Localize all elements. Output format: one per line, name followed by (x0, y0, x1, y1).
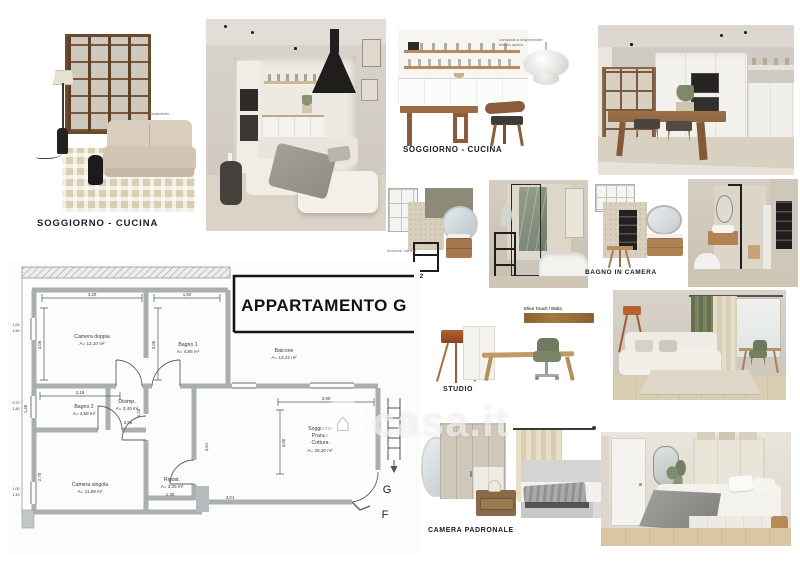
wall-hung-vanity (708, 231, 738, 245)
ceiling (598, 25, 794, 47)
svg-text:3,01: 3,01 (226, 495, 235, 500)
ceiling-spot (224, 25, 227, 28)
svg-text:A= 3,40 m²: A= 3,40 m² (116, 406, 139, 411)
corner-pilaster (22, 510, 34, 528)
svg-text:3,06: 3,06 (151, 340, 156, 349)
ceiling-spot (251, 31, 254, 34)
svg-text:A= 13,22 m²: A= 13,22 m² (271, 355, 297, 360)
svg-text:2,70: 2,70 (37, 472, 42, 481)
svg-text:Camera singola: Camera singola (72, 482, 108, 488)
svg-text:1,40: 1,40 (13, 493, 20, 497)
svg-text:1,50: 1,50 (13, 329, 20, 333)
render-bagno2 (489, 180, 588, 288)
svg-text:A= 4,58 m²: A= 4,58 m² (73, 411, 96, 416)
built-in-oven (240, 89, 258, 111)
balcony-hatch-strip (22, 267, 230, 278)
ceiling-spot (294, 47, 297, 50)
built-in-oven (240, 115, 258, 141)
wardrobe-handle (470, 471, 472, 477)
tile-soggiorno-moodboard: Divanoletto SOGGIORNO - CUCINA (28, 22, 203, 237)
floor-plan: APPARTAMENTO G 4,20 1,92 3,06 3,06 3,18 … (8, 262, 420, 554)
office-chair-seat (533, 351, 561, 362)
wall-frame (362, 39, 381, 67)
kitchen-shelf (264, 81, 322, 84)
office-chair-caster (555, 376, 559, 380)
render-soggiorno-cucina (206, 19, 386, 231)
material-note: Elion Touch / Malta (524, 306, 562, 311)
nightstand-lamp (488, 480, 501, 492)
radio-appliance (408, 42, 419, 50)
svg-text:1,80: 1,80 (13, 407, 20, 411)
tile-camera-padronale-moodboard: CAMERA PADRONALE (418, 402, 610, 534)
pendant-lamp-base (533, 72, 559, 85)
side-table (88, 155, 103, 185)
black-cart (494, 232, 516, 276)
wall-frame (361, 79, 378, 101)
candle (228, 153, 232, 161)
leaf-mirror (501, 204, 512, 226)
bed-pillow (753, 477, 776, 493)
chair (666, 121, 692, 131)
dining-table-top (400, 106, 478, 113)
ceiling-spot (630, 43, 633, 46)
built-in-microwave (691, 73, 719, 93)
window (565, 188, 584, 238)
marker-g: G (383, 484, 392, 496)
chair-leg (517, 124, 523, 146)
pendant-note-line2: bianco opaco (499, 42, 543, 47)
svg-text:3,60: 3,60 (281, 438, 286, 447)
label-studio: STUDIO (443, 386, 473, 393)
small-stool (748, 245, 760, 259)
tile-studio-moodboard: Elion Touch / Malta STUDIO (425, 300, 600, 396)
label-soggiorno-cucina-right: SOGGIORNO - CUCINA (403, 145, 502, 154)
tile-bagno-in-camera-moodboard: BAGNO IN CAMERA (583, 176, 798, 290)
sofa-note: Divanoletto (149, 111, 169, 116)
wood-shelf (404, 50, 520, 53)
svg-text:1,00: 1,00 (13, 323, 20, 327)
label-camera-padronale: CAMERA PADRONALE (428, 527, 514, 534)
svg-text:4,20: 4,20 (88, 292, 97, 297)
bed-storage-drawer (521, 502, 593, 518)
sofa-back-seam (149, 124, 150, 148)
desk-leg (565, 357, 574, 381)
sofa-cushion (659, 340, 677, 352)
vanity-cabinet (446, 238, 472, 258)
office-chair-column (545, 362, 548, 374)
svg-text:A= 13,10 m²: A= 13,10 m² (79, 341, 105, 346)
counter-plant (302, 95, 312, 113)
table-leg (407, 113, 412, 146)
chair (634, 119, 660, 129)
nightstand (476, 490, 516, 516)
chair-leg (490, 124, 496, 146)
round-mirror (646, 205, 682, 235)
svg-text:Camera doppia: Camera doppia (74, 334, 110, 340)
wall-pillar (196, 486, 209, 512)
moodboard-collage: Divanoletto SOGGIORNO - CUCINA (0, 0, 800, 565)
chair-legs (668, 131, 690, 157)
base-cabinets (398, 78, 528, 104)
tripod-lamp-leg (436, 343, 448, 382)
panel-seam (479, 327, 480, 379)
plan-title: APPARTAMENTO G (241, 296, 407, 315)
towel-radiator (776, 201, 792, 249)
svg-text:1,92: 1,92 (183, 292, 192, 297)
render-camera-padronale (601, 432, 791, 546)
table-leg-frame (453, 113, 468, 143)
sofa (103, 120, 196, 180)
render-studio-room (613, 290, 786, 400)
pendant-note: Lampada a sospensione bianco opaco (499, 37, 543, 47)
svg-text:Bagno 1: Bagno 1 (178, 342, 197, 348)
storage-box (697, 432, 715, 440)
svg-text:Pranzo: Pranzo (312, 433, 329, 439)
svg-text:1,35: 1,35 (166, 492, 175, 497)
floor (688, 269, 798, 287)
svg-text:Bagno 2: Bagno 2 (74, 404, 93, 410)
svg-text:3,18: 3,18 (76, 390, 85, 395)
bookcase (65, 34, 151, 134)
svg-text:Cottura: Cottura (311, 440, 328, 446)
black-stool (220, 161, 242, 205)
svg-text:A= 3,05 m²: A= 3,05 m² (161, 484, 184, 489)
shelf-items (268, 74, 316, 81)
tripod-lamp-shade (623, 306, 641, 315)
floor (601, 528, 791, 546)
sofa-cushion (635, 340, 653, 352)
svg-text:1,45: 1,45 (23, 404, 28, 413)
render-bagno-in-camera (688, 179, 798, 287)
stool-leg (619, 250, 621, 267)
svg-text:3,61: 3,61 (204, 442, 209, 451)
floor (489, 276, 588, 288)
shelf-items (752, 58, 790, 65)
svg-text:1,00: 1,00 (13, 487, 20, 491)
nightstand-drawer (480, 498, 514, 510)
lower-cabinets (748, 83, 794, 137)
green-chair-legs (751, 358, 765, 372)
wall-left-edge (601, 436, 609, 528)
office-chair-caster (535, 376, 539, 380)
floor-lamp-shade (53, 70, 74, 85)
curtain-finial (592, 426, 596, 430)
svg-text:0,70: 0,70 (13, 401, 20, 405)
oval-mirror (716, 195, 733, 223)
lamp-cable (36, 150, 62, 159)
towel-ladder-black (619, 210, 637, 250)
cart-note: Arredook / carrello (387, 249, 416, 254)
door (611, 438, 646, 526)
svg-text:3,90: 3,90 (322, 396, 331, 401)
floor-lamp-stem (62, 83, 64, 131)
ceiling-spot (744, 31, 747, 34)
svg-text:A= 26,20 m²: A= 26,20 m² (307, 448, 333, 453)
ceiling-spot (720, 34, 723, 37)
svg-text:3,06: 3,06 (37, 340, 42, 349)
svg-text:2,96: 2,96 (124, 420, 133, 425)
tile-soggiorno-cucina-moodboard: Lampada a sospensione bianco opaco SOGGI… (395, 24, 585, 156)
basin (712, 225, 734, 233)
svg-text:Soggiorno: Soggiorno (308, 426, 332, 432)
sofa-skirt (105, 168, 194, 177)
glass-partition (740, 184, 742, 276)
door-handle (639, 483, 642, 486)
svg-text:A= 4,85 m²: A= 4,85 m² (177, 349, 200, 354)
shelf-items (408, 59, 516, 66)
green-chair-seat (749, 350, 767, 358)
wood-sample-bar (524, 313, 594, 323)
open-shelf (748, 65, 794, 70)
bookcase-doors (68, 37, 148, 131)
drawer-opening (525, 502, 589, 508)
storage-box (719, 432, 735, 440)
svg-text:Ripost.: Ripost. (164, 477, 180, 483)
chair-backrest (485, 101, 526, 115)
white-column (763, 205, 771, 269)
chair-legs (636, 129, 658, 155)
counter-bowl (454, 73, 464, 78)
label-bagno-in-camera: BAGNO IN CAMERA (585, 269, 657, 276)
bed-pillow (728, 475, 753, 492)
tripod-lamp-leg (455, 343, 457, 383)
table-plant (676, 85, 694, 113)
render-dining-kitchen (598, 25, 794, 175)
vanity-cabinet (647, 238, 683, 256)
label-soggiorno-cucina-left: SOGGIORNO - CUCINA (37, 218, 158, 229)
wood-shelf (404, 66, 520, 69)
marker-f: F (382, 509, 389, 521)
svg-text:A= 11,59 m²: A= 11,59 m² (78, 489, 103, 494)
svg-text:Balcone: Balcone (275, 348, 294, 354)
rug (639, 370, 761, 395)
cooker-hood-duct (330, 29, 339, 53)
storage-box (739, 432, 757, 440)
svg-text:Disimp.: Disimp. (118, 399, 135, 405)
chair-leg (503, 124, 506, 144)
ceiling (206, 19, 386, 45)
glass-partition-top (728, 184, 742, 186)
